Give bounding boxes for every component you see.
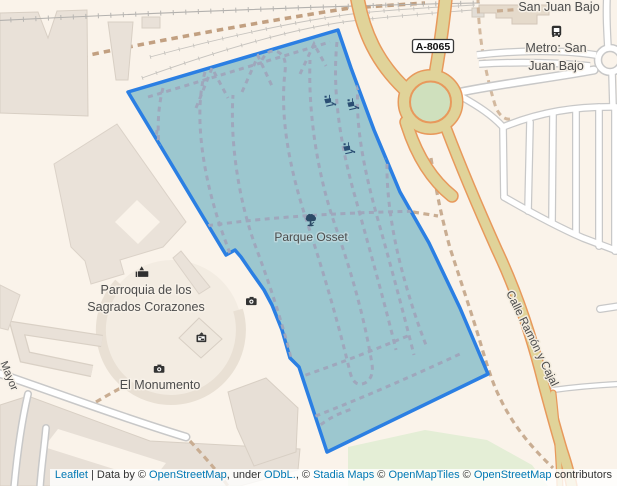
svg-text:Juan Bajo: Juan Bajo xyxy=(528,59,584,73)
svg-text:Parroquia de los: Parroquia de los xyxy=(100,283,191,297)
svg-text:A-8065: A-8065 xyxy=(416,41,451,53)
svg-text:El Monumento: El Monumento xyxy=(120,378,201,392)
svg-text:Parque Osset: Parque Osset xyxy=(274,230,348,244)
svg-text:San Juan Bajo: San Juan Bajo xyxy=(518,0,599,14)
svg-text:Metro: San: Metro: San xyxy=(525,41,586,55)
svg-text:Sagrados Corazones: Sagrados Corazones xyxy=(87,300,204,314)
